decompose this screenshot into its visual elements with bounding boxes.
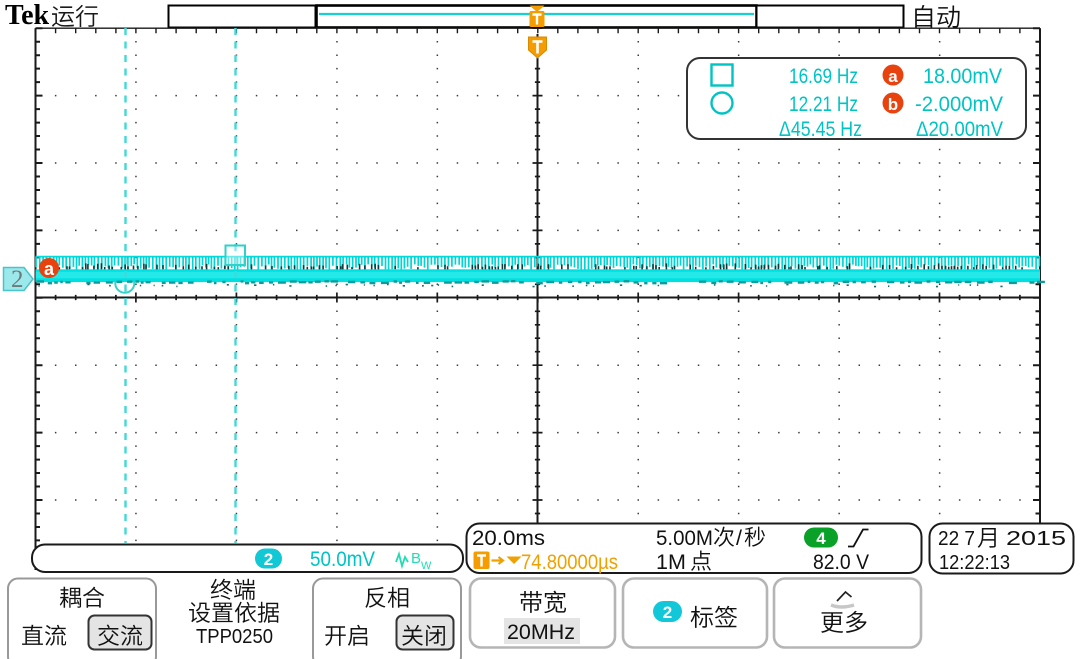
svg-text:12.21 Hz: 12.21 Hz [789,92,858,116]
svg-text:18.00mV: 18.00mV [923,64,1003,88]
svg-text:74.80000µs: 74.80000µs [521,550,618,574]
svg-text:-2.000mV: -2.000mV [915,92,1004,116]
svg-text:50.0mV: 50.0mV [310,547,376,571]
svg-text:82.0 V: 82.0 V [813,550,870,574]
svg-text:20.0ms: 20.0ms [472,526,545,550]
svg-text:22 7: 22 7 [938,527,975,550]
svg-text:Δ45.45 Hz: Δ45.45 Hz [779,117,862,141]
svg-text:4: 4 [816,529,826,548]
svg-text:16.69 Hz: 16.69 Hz [789,64,858,88]
svg-text:Tek: Tek [5,0,50,31]
svg-text:TPP0250: TPP0250 [196,626,273,648]
svg-text:20MHz: 20MHz [507,621,575,644]
svg-text:/: / [736,526,742,550]
svg-text:B: B [411,550,421,567]
svg-text:2: 2 [11,266,24,293]
svg-text:2: 2 [264,550,273,569]
svg-text:2: 2 [663,603,672,622]
svg-text:2015: 2015 [1006,527,1066,550]
svg-text:5.00M: 5.00M [656,526,713,550]
svg-text:a: a [44,259,55,279]
svg-text:1M: 1M [656,550,686,574]
svg-text:b: b [888,95,898,114]
svg-text:a: a [888,67,898,86]
svg-text:12:22:13: 12:22:13 [939,551,1010,574]
svg-text:W: W [421,560,432,572]
svg-text:Δ20.00mV: Δ20.00mV [916,117,1004,141]
